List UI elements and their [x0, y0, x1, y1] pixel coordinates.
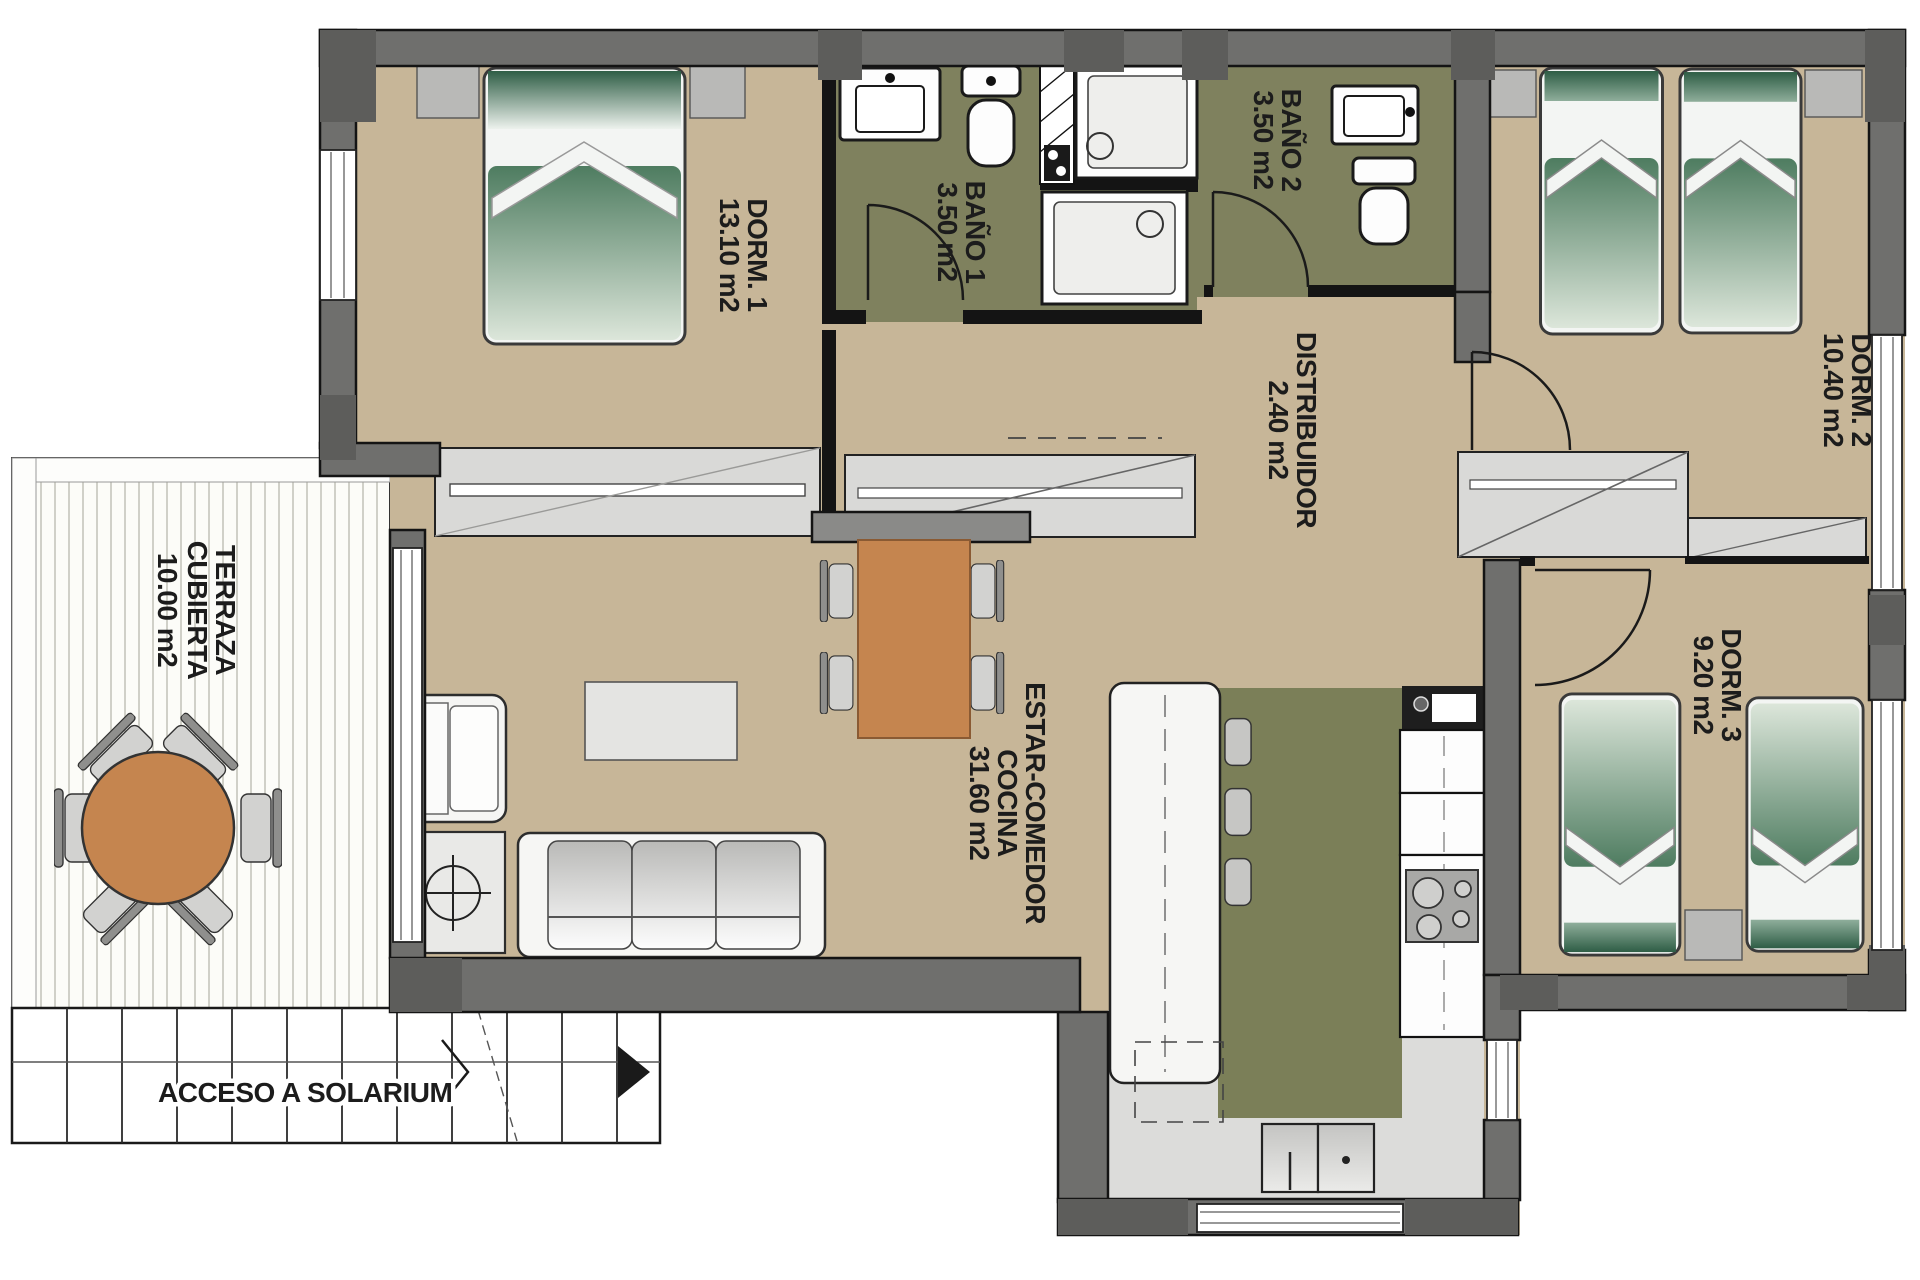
- nightstand: [1805, 70, 1862, 117]
- label-estar-line1: ESTAR-COMEDOR: [1020, 682, 1051, 924]
- nightstand: [417, 66, 479, 118]
- floor-plan: DORM. 1 13.10 m2 BAÑO 1 3.50 m2 BAÑO 2 3…: [0, 0, 1920, 1280]
- stairs-to-solarium: [12, 1008, 660, 1143]
- label-acceso-solarium: ACCESO A SOLARIUM: [158, 1077, 452, 1108]
- label-distribuidor-area: 2.40 m2: [1263, 380, 1294, 479]
- label-bano2-name: BAÑO 2: [1276, 89, 1307, 192]
- washbasin-icon: [1332, 86, 1418, 144]
- single-bed-icon: [1680, 69, 1801, 333]
- chair-icon: [971, 560, 1004, 622]
- kitchen-island: [1110, 683, 1220, 1083]
- single-bed-icon: [1747, 698, 1863, 951]
- half-wall: [812, 512, 1030, 542]
- label-dorm3-name: DORM. 3: [1716, 628, 1747, 741]
- shower-icon: [1076, 66, 1197, 178]
- hob-icon: [1406, 870, 1478, 942]
- label-distribuidor-name: DISTRIBUIDOR: [1291, 332, 1322, 529]
- toilet-icon: [962, 66, 1020, 166]
- sofa-icon: [518, 833, 825, 957]
- toilet-icon: [1353, 158, 1415, 244]
- nightstand: [690, 66, 745, 118]
- wardrobe-icon: [1458, 452, 1688, 557]
- label-terraza-line2: CUBIERTA: [182, 541, 213, 680]
- label-bano2-area: 3.50 m2: [1248, 90, 1279, 189]
- double-bed-icon: [484, 68, 685, 344]
- stool-icon: [1225, 789, 1251, 836]
- label-bano1-name: BAÑO 1: [960, 181, 991, 284]
- label-bano1-area: 3.50 m2: [932, 182, 963, 281]
- stool-icon: [1225, 719, 1251, 766]
- single-bed-icon: [1541, 68, 1663, 334]
- round-table-icon: [82, 752, 234, 904]
- label-estar-area: 31.60 m2: [964, 746, 995, 860]
- label-dorm1-name: DORM. 1: [742, 198, 773, 311]
- kitchen-sink-icon: [1402, 686, 1485, 730]
- chair-icon: [971, 652, 1004, 714]
- stool-icon: [1225, 859, 1251, 906]
- window-icon: [1197, 1204, 1403, 1232]
- shower-icon: [1042, 192, 1187, 304]
- label-estar-line2: COCINA: [992, 749, 1023, 857]
- dining-table-icon: [858, 540, 970, 738]
- window-icon: [1872, 700, 1902, 950]
- kitchen-cabinets: [1262, 1124, 1374, 1192]
- wardrobe-icon: [435, 448, 820, 536]
- label-terraza-line1: TERRAZA: [210, 545, 241, 676]
- label-terraza-area: 10.00 m2: [152, 553, 183, 667]
- wall-hatch: [1040, 62, 1074, 184]
- wardrobe-icon: [1688, 518, 1866, 558]
- nightstand: [1685, 910, 1742, 960]
- window-icon: [1487, 1040, 1517, 1120]
- chair-icon: [820, 652, 853, 714]
- single-bed-icon: [1560, 694, 1680, 955]
- label-dorm3-area: 9.20 m2: [1688, 635, 1719, 734]
- window-icon: [393, 548, 422, 942]
- label-dorm2-area: 10.40 m2: [1818, 333, 1849, 447]
- label-dorm1-area: 13.10 m2: [714, 198, 745, 312]
- window-icon: [320, 150, 356, 300]
- label-dorm2-name: DORM. 2: [1846, 333, 1877, 446]
- chair-icon: [820, 560, 853, 622]
- coffee-table-icon: [585, 682, 737, 760]
